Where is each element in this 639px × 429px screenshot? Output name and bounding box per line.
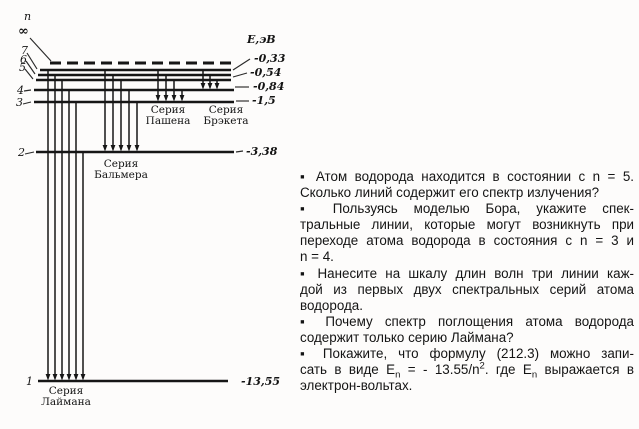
level-label-pointer [30,38,51,61]
level-label-1: 1 [26,375,33,388]
series-label-brackett: Брэкета [203,115,248,127]
energy-value-label: -13,55 [241,375,280,388]
brackett-arrowhead-icon [201,83,206,90]
lyman-arrowhead-icon [53,374,58,381]
energy-label-pointer [233,73,247,77]
paschen-arrowhead-icon [180,95,185,102]
equation-text: = - 13.55/n [400,362,479,377]
question-line: ▪ Покажите, что формулу (212.3) можно за… [300,346,634,362]
balmer-arrowhead-icon [127,145,132,152]
balmer-arrowhead-icon [135,145,140,152]
question-line: ▪ Нанесите на шкалу длин волн три линии … [300,266,634,282]
lyman-arrowhead-icon [74,374,79,381]
brackett-arrowhead-icon [208,83,213,90]
energy-value-label: -0,84 [253,80,284,93]
question-line: электрон-вольтах. [300,378,634,394]
energy-value-label: -3,38 [246,145,278,158]
lyman-arrowhead-icon [81,374,86,381]
energy-label-pointer [233,59,250,70]
question-line: содержит только серию Лаймана? [300,330,634,346]
question-line: ▪ Пользуясь моделью Бора, укажите спек- [300,201,634,217]
paschen-arrowhead-icon [156,95,161,102]
question-line: ▪ Атом водорода находится в состоянии с … [300,169,634,185]
balmer-arrowhead-icon [103,145,108,152]
level-label-pointer [23,102,31,104]
question-line: n = 4. [300,249,634,265]
equation-text: . где E [485,362,532,377]
series-label-balmer: Бальмера [94,169,148,181]
question-line: Сколько линий содержит его спектр излуче… [300,185,634,201]
hydrogen-energy-level-diagram: n∞7654321E,эВ-0,33-0,54-0,84-1,5-3,38-13… [0,0,310,429]
question-line: ▪ Почему спектр поглощения атома водород… [300,314,634,330]
series-label-paschen: Пашена [146,115,191,127]
paschen-arrowhead-icon [164,95,169,102]
question-text-block: ▪ Атом водорода находится в состоянии с … [300,169,634,394]
balmer-arrowhead-icon [119,145,124,152]
level-label-3: 3 [16,96,23,109]
paschen-arrowhead-icon [172,95,177,102]
question-line: переходе атома водорода в состояния с n … [300,233,634,249]
energy-value-label: -0,54 [250,66,281,79]
question-line: тральные линии, которые могут возникнуть… [300,217,634,233]
level-label-pointer [27,53,37,69]
level-label-∞: ∞ [18,24,29,39]
brackett-arrowhead-icon [215,83,220,90]
lyman-arrowhead-icon [67,374,72,381]
equation-text: сать в виде E [300,362,395,377]
energy-value-label: -1,5 [252,94,276,107]
lyman-arrowhead-icon [60,374,65,381]
series-label-lyman: Лаймана [41,396,91,408]
level-label-pointer [25,152,34,154]
textbook-page: n∞7654321E,эВ-0,33-0,54-0,84-1,5-3,38-13… [0,0,639,429]
equation-text: выражается в [537,362,634,377]
energy-axis-header: E,эВ [246,33,276,46]
energy-label-pointer [236,151,243,152]
question-line-equation: сать в виде En = - 13.55/n2. где En выра… [300,362,634,378]
question-line: водорода. [300,298,634,314]
energy-value-label: -0,33 [254,52,286,65]
level-label-5: 5 [19,61,26,74]
level-label-pointer [24,90,31,91]
lyman-arrowhead-icon [46,374,51,381]
level-label-pointer [25,69,33,79]
balmer-arrowhead-icon [111,145,116,152]
question-line: дой из первых двух спектральных серий ат… [300,282,634,298]
level-label-2: 2 [17,146,25,159]
axis-label-n: n [24,10,31,23]
